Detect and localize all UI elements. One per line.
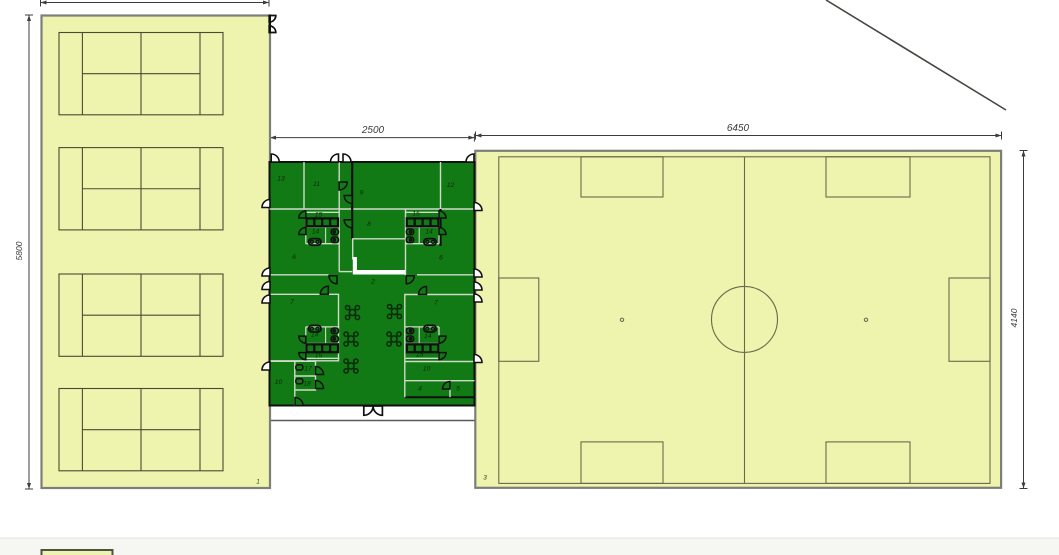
svg-text:12: 12 <box>447 182 455 189</box>
svg-text:11: 11 <box>313 181 320 188</box>
svg-text:13: 13 <box>277 176 285 183</box>
svg-text:10: 10 <box>275 379 283 386</box>
svg-text:7: 7 <box>290 299 294 306</box>
svg-text:14: 14 <box>311 332 319 339</box>
svg-text:3: 3 <box>483 475 487 482</box>
svg-text:18: 18 <box>303 381 311 388</box>
svg-text:4: 4 <box>418 386 422 393</box>
svg-text:2: 2 <box>370 279 375 286</box>
svg-text:6: 6 <box>439 255 443 262</box>
svg-text:5800: 5800 <box>14 241 24 260</box>
svg-text:6: 6 <box>292 254 296 261</box>
svg-text:5: 5 <box>456 386 460 393</box>
svg-text:4140: 4140 <box>1009 308 1019 327</box>
svg-text:15: 15 <box>412 211 420 218</box>
svg-text:14: 14 <box>425 229 433 236</box>
svg-text:8: 8 <box>367 221 371 228</box>
svg-text:15: 15 <box>315 353 323 360</box>
svg-text:15: 15 <box>416 352 424 359</box>
svg-text:9: 9 <box>360 190 364 197</box>
svg-text:6450: 6450 <box>727 123 750 134</box>
svg-text:7: 7 <box>434 300 438 307</box>
svg-text:14: 14 <box>424 333 432 340</box>
svg-text:10: 10 <box>423 366 431 373</box>
svg-text:17: 17 <box>304 366 312 373</box>
svg-text:14: 14 <box>312 229 320 236</box>
svg-text:15: 15 <box>315 212 323 219</box>
svg-text:1: 1 <box>256 479 260 486</box>
svg-text:2500: 2500 <box>361 125 385 136</box>
